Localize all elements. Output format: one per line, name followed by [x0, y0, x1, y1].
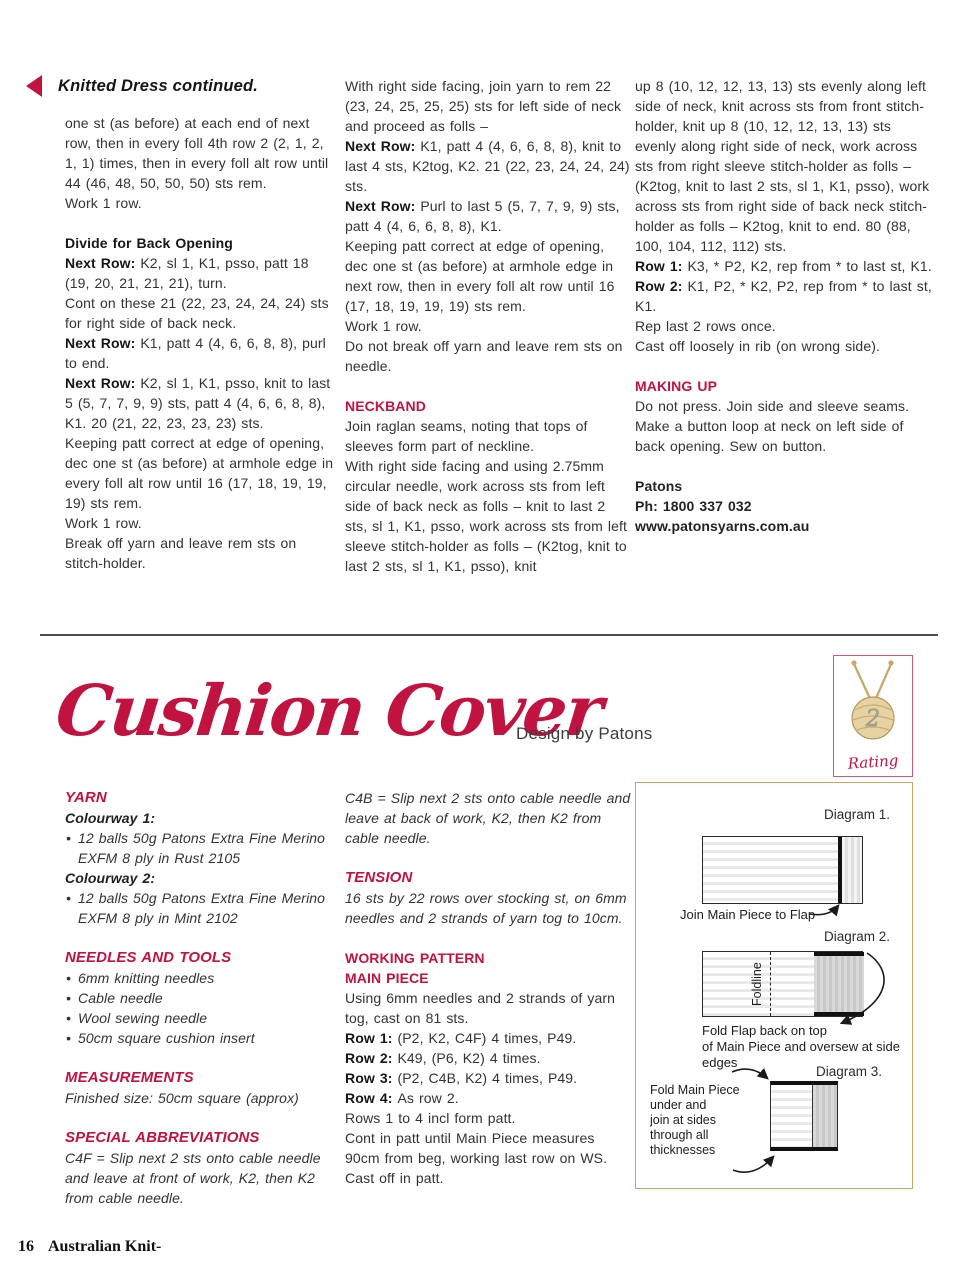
body-paragraph: Do not press. Join side and sleeve seams…: [635, 396, 937, 456]
bullet-item: 6mm knitting needles: [65, 968, 337, 988]
bullet-item: 12 balls 50g Patons Extra Fine Merino EX…: [65, 828, 337, 868]
body-paragraph: Next Row: K2, sl 1, K1, psso, knit to la…: [65, 373, 337, 433]
diagram1-main-piece: [702, 836, 863, 904]
section-heading: YARN: [65, 788, 337, 808]
diagram-note-line: Fold Main Piece: [650, 1083, 762, 1098]
body-paragraph: Work 1 row.: [65, 193, 337, 213]
body-paragraph: 16 sts by 22 rows over stocking st, on 6…: [345, 888, 631, 928]
body-paragraph: Do not break off yarn and leave rem sts …: [345, 336, 631, 376]
article-column-1: one st (as before) at each end of next r…: [65, 113, 337, 573]
body-paragraph: Row 4: As row 2.: [345, 1088, 631, 1108]
diagram1-flap: [842, 837, 862, 903]
design-byline: Design by Patons: [516, 724, 652, 744]
diagram3-label: Diagram 3.: [816, 1064, 882, 1079]
body-paragraph: Cast off loosely in rib (on wrong side).: [635, 336, 937, 356]
section-heading: WORKING PATTERN: [345, 948, 631, 968]
body-paragraph: Next Row: K1, patt 4 (4, 6, 6, 8, 8), pu…: [65, 333, 337, 373]
continued-heading: Knitted Dress continued.: [58, 77, 258, 96]
body-paragraph: Break off yarn and leave rem sts on stit…: [65, 533, 337, 573]
bullet-item: Cable needle: [65, 988, 337, 1008]
section-heading: TENSION: [345, 868, 631, 888]
section-heading: NEEDLES AND TOOLS: [65, 948, 337, 968]
diagram1-label: Diagram 1.: [824, 807, 890, 822]
page-footer: 16Australian Knit-: [18, 1238, 161, 1256]
diagram2-caption-line1: Fold Flap back on top: [702, 1023, 827, 1039]
body-paragraph: Rep last 2 rows once.: [635, 316, 937, 336]
section-heading: NECKBAND: [345, 396, 631, 416]
contact-phone: Ph: 1800 337 032: [635, 496, 937, 516]
page-number: 16: [18, 1238, 34, 1255]
body-paragraph: Row 1: K3, * P2, K2, rep from * to last …: [635, 256, 937, 276]
diagram2-foldline-label: Foldline: [750, 954, 764, 1014]
diagram3-flap: [812, 1085, 837, 1147]
diagram2-label: Diagram 2.: [824, 929, 890, 944]
magazine-page: { "colors":{"accent_red":"#c01340","diag…: [0, 0, 973, 1280]
body-paragraph: Row 2: K1, P2, * K2, P2, rep from * to l…: [635, 276, 937, 316]
body-paragraph: Rows 1 to 4 incl form patt.: [345, 1108, 631, 1128]
diagram2-foldline: [770, 952, 771, 1016]
body-paragraph: Work 1 row.: [345, 316, 631, 336]
body-paragraph: Join raglan seams, noting that tops of s…: [345, 416, 631, 456]
diagram3-note: Fold Main Pieceunder andjoin at sidesthr…: [650, 1083, 762, 1158]
body-paragraph: Cont in patt until Main Piece measures 9…: [345, 1128, 631, 1188]
body-paragraph: C4B = Slip next 2 sts onto cable needle …: [345, 788, 631, 848]
diagram3-bottom-arrow: [733, 1157, 773, 1172]
body-paragraph: With right side facing and using 2.75mm …: [345, 456, 631, 576]
contact-brand: Patons: [635, 476, 937, 496]
body-paragraph: up 8 (10, 12, 12, 13, 13) sts evenly alo…: [635, 76, 937, 256]
diagram3-folded-piece: [770, 1081, 838, 1151]
bullet-item: 50cm square cushion insert: [65, 1028, 337, 1048]
body-paragraph: With right side facing, join yarn to rem…: [345, 76, 631, 136]
body-paragraph: Next Row: K1, patt 4 (4, 6, 6, 8, 8), kn…: [345, 136, 631, 196]
contact-url: www.patonsyarns.com.au: [635, 516, 937, 536]
diagram-note-line: under and: [650, 1098, 762, 1113]
section-divider: [40, 634, 938, 636]
body-paragraph: C4F = Slip next 2 sts onto cable needle …: [65, 1148, 337, 1208]
rating-badge: 2 Rating: [833, 655, 913, 777]
diagram-note-line: join at sides: [650, 1113, 762, 1128]
diagram1-caption: Join Main Piece to Flap: [680, 907, 815, 923]
body-paragraph: Row 1: (P2, K2, C4F) 4 times, P49.: [345, 1028, 631, 1048]
body-paragraph: Next Row: Purl to last 5 (5, 7, 7, 9, 9)…: [345, 196, 631, 236]
body-paragraph: Keeping patt correct at edge of opening,…: [65, 433, 337, 513]
subheading: Colourway 2:: [65, 868, 337, 888]
subheading: Divide for Back Opening: [65, 233, 337, 253]
body-paragraph: Finished size: 50cm square (approx): [65, 1088, 337, 1108]
body-paragraph: Row 2: K49, (P6, K2) 4 times.: [345, 1048, 631, 1068]
rating-value: 2: [865, 706, 881, 732]
yarn-medal-icon: 2: [834, 656, 912, 748]
section-heading: MAKING UP: [635, 376, 937, 396]
body-paragraph: Next Row: K2, sl 1, K1, psso, patt 18 (1…: [65, 253, 337, 293]
body-paragraph: Keeping patt correct at edge of opening,…: [345, 236, 631, 316]
article-column-3: up 8 (10, 12, 12, 13, 13) sts evenly alo…: [635, 76, 937, 536]
body-paragraph: Cont on these 21 (22, 23, 24, 24, 24) st…: [65, 293, 337, 333]
pattern-column-2: C4B = Slip next 2 sts onto cable needle …: [345, 788, 631, 1188]
body-paragraph: Work 1 row.: [65, 513, 337, 533]
article-column-2: With right side facing, join yarn to rem…: [345, 76, 631, 576]
bullet-item: 12 balls 50g Patons Extra Fine Merino EX…: [65, 888, 337, 928]
diagram2-main-piece: Foldline: [702, 951, 863, 1017]
subheading: Colourway 1:: [65, 808, 337, 828]
diagram-panel: Diagram 1. Join Main Piece to Flap Diagr…: [635, 782, 913, 1189]
body-paragraph: Row 3: (P2, C4B, K2) 4 times, P49.: [345, 1068, 631, 1088]
diagram-note-line: thicknesses: [650, 1143, 762, 1158]
section-heading: SPECIAL ABBREVIATIONS: [65, 1128, 337, 1148]
body-paragraph: Using 6mm needles and 2 strands of yarn …: [345, 988, 631, 1028]
bullet-item: Wool sewing needle: [65, 1008, 337, 1028]
section-heading: MAIN PIECE: [345, 968, 631, 988]
body-paragraph: one st (as before) at each end of next r…: [65, 113, 337, 193]
diagram2-flap: [814, 952, 864, 1016]
pattern-column-1: YARNColourway 1:12 balls 50g Patons Extr…: [65, 788, 337, 1208]
section-heading: MEASUREMENTS: [65, 1068, 337, 1088]
continued-marker-icon: [26, 75, 42, 97]
rating-label: Rating: [833, 750, 912, 773]
magazine-name: Australian Knit-: [48, 1238, 161, 1255]
diagram-note-line: through all: [650, 1128, 762, 1143]
